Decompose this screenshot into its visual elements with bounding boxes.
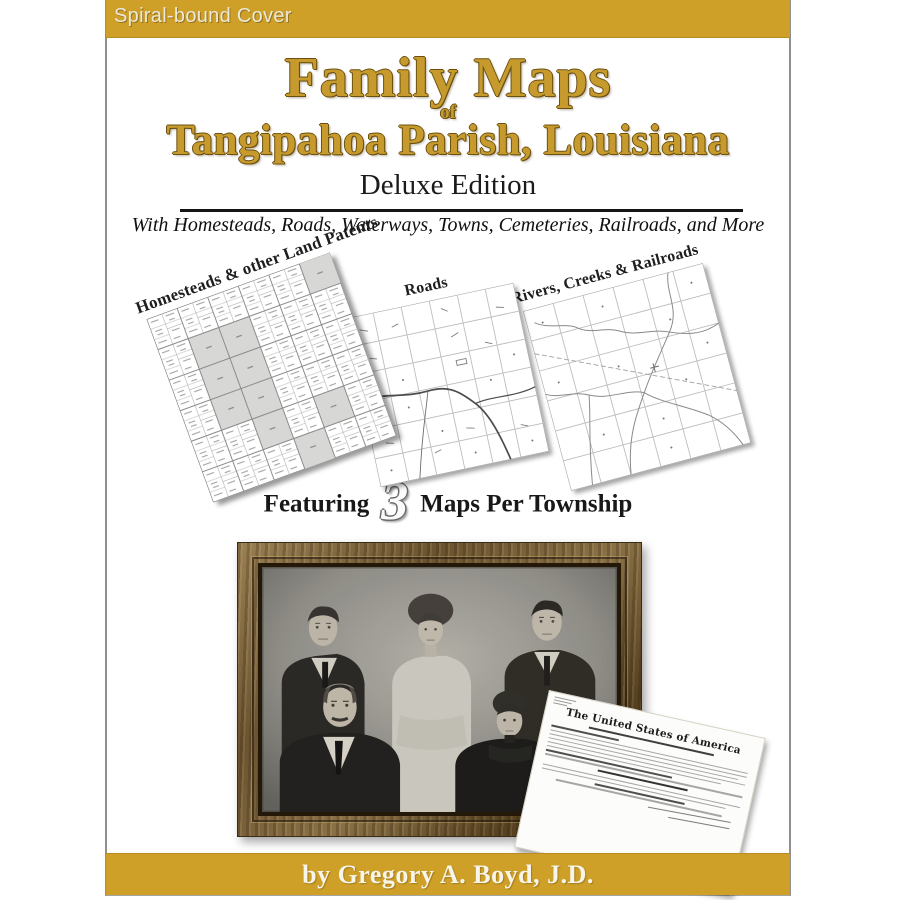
- spiral-binding-label: Spiral-bound Cover: [106, 0, 790, 28]
- title-region: Tangipahoa Parish, Louisiana: [106, 119, 790, 162]
- map-thumb-rivers: Rivers, Creeks & Railroads: [523, 263, 751, 491]
- author-label: by Gregory A. Boyd, J.D.: [106, 854, 790, 896]
- author-banner: by Gregory A. Boyd, J.D.: [106, 853, 790, 895]
- rivers-map-grid: [523, 263, 751, 491]
- title-main: Family Maps: [106, 50, 790, 106]
- book-cover-page: Spiral-bound Cover Family Maps of Tangip…: [0, 0, 900, 900]
- spiral-binding-banner: Spiral-bound Cover: [106, 0, 790, 38]
- tagline: With Homesteads, Roads, Waterways, Towns…: [106, 214, 790, 237]
- edition-label: Deluxe Edition: [106, 171, 790, 200]
- featuring-prefix: Featuring: [264, 490, 370, 517]
- map-thumb-homesteads: Homesteads & other Land Patents: [147, 253, 397, 503]
- divider-rule: [180, 209, 743, 212]
- featuring-suffix: Maps Per Township: [420, 490, 632, 517]
- map-label-roads: Roads: [403, 274, 449, 301]
